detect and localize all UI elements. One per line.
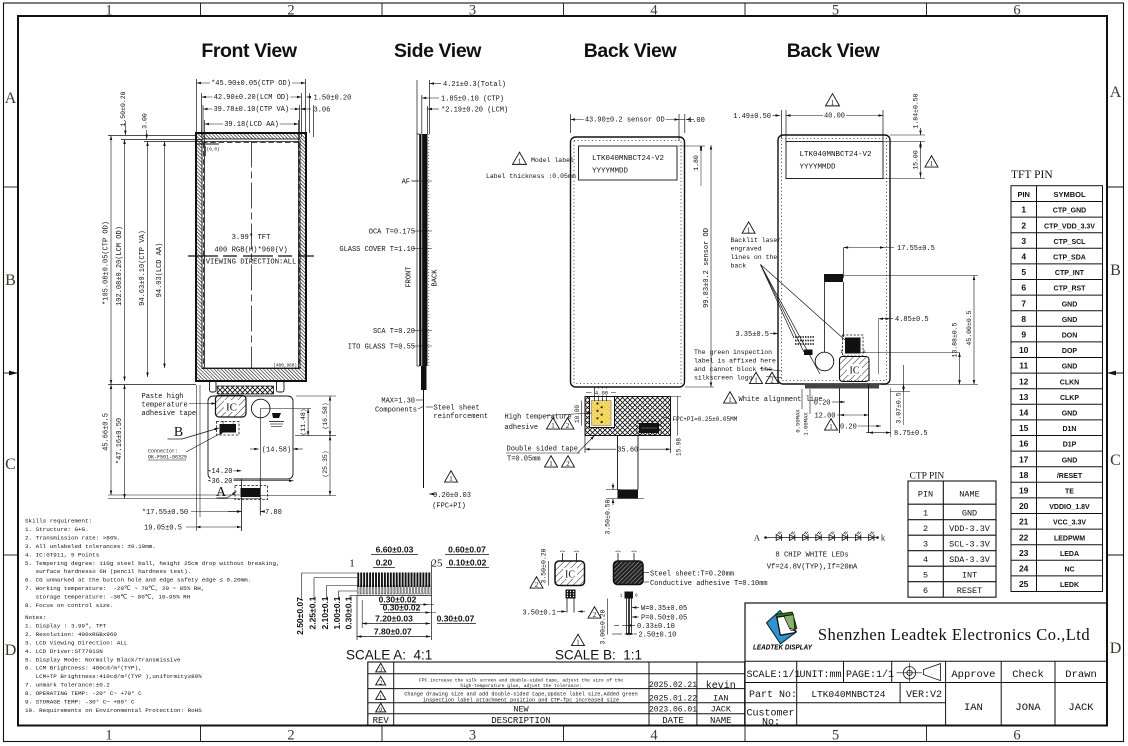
svg-text:*105.08±0.05(CTP OD): *105.08±0.05(CTP OD)	[103, 221, 111, 305]
svg-text:4. LCD Driver:ST7701SN: 4. LCD Driver:ST7701SN	[25, 648, 103, 655]
svg-text:15.00: 15.00	[913, 150, 920, 170]
svg-text:Label thickness :0.05mm: Label thickness :0.05mm	[486, 173, 576, 180]
svg-text:5: 5	[832, 728, 839, 744]
svg-text:JONA: JONA	[1015, 702, 1041, 714]
svg-text:GND: GND	[1062, 411, 1078, 418]
svg-text:DOP: DOP	[1062, 348, 1078, 355]
svg-text:Steel sheet:T=0.20mm: Steel sheet:T=0.20mm	[650, 571, 734, 579]
svg-text:1.00±0.1: 1.00±0.1	[332, 596, 342, 629]
svg-text:7: 7	[1021, 298, 1026, 308]
svg-text:7.20±0.03: 7.20±0.03	[375, 614, 413, 624]
svg-text:3.00: 3.00	[142, 113, 149, 129]
svg-text:Back View: Back View	[787, 40, 881, 62]
svg-text:D: D	[1110, 640, 1122, 657]
svg-text:1: 1	[840, 349, 843, 355]
svg-text:2: 2	[566, 460, 570, 468]
svg-text:1.00MAX: 1.00MAX	[803, 412, 810, 436]
svg-text:IAN: IAN	[964, 702, 983, 714]
svg-text:(25.35): (25.35)	[322, 450, 329, 477]
svg-text:GND: GND	[1062, 364, 1078, 371]
svg-text:1.85±0.10 (CTP): 1.85±0.10 (CTP)	[441, 96, 504, 104]
svg-text:DATE: DATE	[662, 716, 684, 726]
svg-text:0: 0	[379, 707, 382, 713]
svg-text:18: 18	[1019, 470, 1029, 480]
svg-text:engraved: engraved	[731, 246, 762, 253]
svg-text:2: 2	[593, 611, 597, 619]
svg-text:23: 23	[1019, 548, 1029, 558]
svg-text:PIN: PIN	[918, 490, 933, 500]
svg-text:GND: GND	[1062, 301, 1078, 308]
svg-text:SCALE:1/1: SCALE:1/1	[747, 669, 801, 681]
svg-text:CTP_SCL: CTP_SCL	[1054, 239, 1087, 246]
svg-text:B: B	[1110, 262, 1121, 279]
svg-text:5: 5	[832, 3, 839, 19]
svg-text:ITO GLASS T=0.55: ITO GLASS T=0.55	[348, 344, 415, 352]
svg-text:Back View: Back View	[584, 40, 678, 62]
svg-text:45.00±0.5: 45.00±0.5	[966, 310, 973, 345]
svg-text:(16.58): (16.58)	[322, 402, 329, 429]
svg-text:39.78±0.10(CTP VA): 39.78±0.10(CTP VA)	[213, 106, 289, 114]
svg-text:3.35±0.5: 3.35±0.5	[735, 331, 769, 339]
svg-text:3.06: 3.06	[314, 107, 331, 115]
svg-text:A: A	[754, 533, 761, 543]
svg-text:LEDK: LEDK	[1060, 582, 1079, 589]
svg-text:1. Display : 3.99", TFT: 1. Display : 3.99", TFT	[25, 622, 107, 629]
svg-text:8. Focus on control size.: 8. Focus on control size.	[25, 602, 113, 609]
svg-text:Paste high: Paste high	[142, 393, 184, 401]
svg-text:OCA T=0.175: OCA T=0.175	[369, 229, 415, 237]
svg-text:GND: GND	[962, 509, 977, 519]
svg-text:surface hardness≥ 6H (pencil h: surface hardness≥ 6H (pencil hardness te…	[25, 568, 191, 575]
svg-text:0.30±0.02: 0.30±0.02	[383, 603, 421, 613]
svg-text:12: 12	[1019, 376, 1029, 386]
svg-text:8: 8	[1021, 314, 1026, 324]
svg-text:B: B	[5, 272, 16, 289]
svg-text:1: 1	[449, 475, 453, 483]
svg-text:14.20: 14.20	[211, 468, 232, 476]
svg-text:4. IC:GT911, 5 Points: 4. IC:GT911, 5 Points	[25, 551, 100, 558]
svg-text:4.21±0.3(Total): 4.21±0.3(Total)	[443, 81, 506, 89]
svg-text:LEADTEK DISPLAY: LEADTEK DISPLAY	[753, 645, 813, 652]
svg-text:3: 3	[379, 667, 382, 673]
svg-text:LTK040MNBCT24-V2: LTK040MNBCT24-V2	[592, 155, 664, 163]
svg-text:Shenzhen Leadtek Electronics C: Shenzhen Leadtek Electronics Co.,Ltd	[818, 625, 1091, 644]
svg-text:(14.58): (14.58)	[262, 447, 291, 455]
svg-text:1: 1	[1021, 205, 1026, 215]
svg-text:1.50±0.20: 1.50±0.20	[314, 95, 352, 103]
svg-text:REV: REV	[373, 716, 390, 726]
svg-text:2: 2	[287, 3, 294, 19]
svg-text:2. Resolution: 400xRGBx960: 2. Resolution: 400xRGBx960	[25, 631, 117, 638]
svg-text:2.10±0.1: 2.10±0.1	[320, 596, 330, 629]
svg-text:B: B	[174, 425, 183, 440]
svg-text:and cannot block the: and cannot block the	[694, 366, 772, 373]
svg-text:8. OPERATING TEMP: -20° C~ +70: 8. OPERATING TEMP: -20° C~ +70° C	[25, 690, 142, 697]
svg-text:AF: AF	[402, 179, 410, 187]
svg-text:3.50±0.20: 3.50±0.20	[541, 548, 548, 583]
svg-text:LCM+TP Brightness:410cd/m²(TYP: LCM+TP Brightness:410cd/m²(TYP ),uniform…	[25, 673, 202, 680]
svg-text:0.20: 0.20	[814, 400, 831, 408]
svg-text:3.07±0.5: 3.07±0.5	[896, 392, 903, 423]
svg-text:3: 3	[469, 728, 476, 744]
svg-text:0.20: 0.20	[376, 558, 393, 568]
svg-text:3. LCD Viewing Direction: ALL: 3. LCD Viewing Direction: ALL	[25, 639, 128, 646]
svg-text:Front View: Front View	[201, 40, 298, 62]
svg-text:GLASS COVER T=1.10: GLASS COVER T=1.10	[339, 246, 415, 254]
svg-text:(400,960): (400,960)	[273, 364, 297, 369]
svg-text:3.00±0.20: 3.00±0.20	[600, 609, 607, 644]
svg-text:6: 6	[1013, 3, 1020, 19]
svg-text:1.84±0.50: 1.84±0.50	[913, 93, 920, 128]
svg-text:FPC increase the silk screen a: FPC increase the silk screen and double-…	[419, 678, 623, 684]
svg-text:(0,0): (0,0)	[207, 148, 220, 153]
svg-text:high-temperature glue, adjust: high-temperature glue, adjust the tolera…	[460, 683, 581, 689]
svg-text:inspection label attachment po: inspection label attachment position and…	[423, 698, 619, 704]
svg-text:D1P: D1P	[1063, 442, 1077, 449]
svg-text:Skills requirement:: Skills requirement:	[25, 518, 92, 525]
svg-text:1: 1	[620, 593, 623, 599]
svg-text:1.00: 1.00	[688, 117, 705, 125]
svg-text:lines on the: lines on the	[731, 254, 778, 261]
svg-text:YYYYMMDD: YYYYMMDD	[800, 164, 837, 172]
svg-text:FPC+PI=0.25±0.05MM: FPC+PI=0.25±0.05MM	[673, 416, 738, 423]
svg-text:2025.02.21: 2025.02.21	[649, 681, 697, 690]
svg-text:6: 6	[863, 349, 866, 355]
svg-text:4.85±0.5: 4.85±0.5	[895, 316, 929, 324]
svg-text:6: 6	[923, 586, 928, 596]
svg-text:1: 1	[930, 160, 934, 168]
svg-text:19: 19	[1019, 486, 1029, 496]
svg-text:15.98: 15.98	[676, 438, 683, 456]
svg-text:Vf=24.8V(TYP),If=20mA: Vf=24.8V(TYP),If=20mA	[767, 564, 858, 572]
svg-text:16: 16	[1019, 439, 1029, 449]
svg-text:Side View: Side View	[394, 40, 482, 62]
svg-text:10: 10	[1019, 345, 1029, 355]
svg-text:17.55±0.5: 17.55±0.5	[897, 245, 935, 253]
svg-text:MAX=1.30: MAX=1.30	[381, 398, 415, 406]
svg-text:35.60: 35.60	[617, 446, 638, 454]
svg-text:12.00: 12.00	[814, 413, 835, 421]
svg-text:1: 1	[831, 99, 835, 107]
svg-text:1: 1	[518, 158, 522, 166]
svg-text:94.63±0.10(CTP VA): 94.63±0.10(CTP VA)	[139, 230, 147, 306]
svg-text:0.60±0.07: 0.60±0.07	[448, 545, 486, 555]
svg-text:102.08±0.20(LCM OD): 102.08±0.20(LCM OD)	[116, 226, 124, 306]
svg-text:6: 6	[1013, 728, 1020, 744]
svg-text:2: 2	[535, 581, 539, 589]
svg-text:NAME: NAME	[710, 716, 732, 726]
svg-text:1: 1	[754, 377, 758, 385]
svg-text:IC: IC	[850, 366, 860, 377]
svg-text:*2.19±0.20 (LCM): *2.19±0.20 (LCM)	[441, 107, 508, 115]
svg-text:6. CG unmarked at the button h: 6. CG unmarked at the button hole and ed…	[25, 577, 251, 584]
svg-text:label is affixed here: label is affixed here	[694, 358, 776, 365]
svg-text:CTP_RST: CTP_RST	[1054, 286, 1087, 293]
svg-text:Steel sheet: Steel sheet	[434, 405, 480, 413]
svg-text:2025.01.22: 2025.01.22	[649, 695, 697, 704]
svg-text:25: 25	[432, 558, 444, 570]
svg-text:PIN: PIN	[1017, 190, 1030, 199]
svg-text:20: 20	[1019, 501, 1029, 511]
svg-text:SYMBOL: SYMBOL	[1053, 190, 1086, 199]
svg-text:0.33±0.10: 0.33±0.10	[637, 623, 675, 631]
svg-text:3: 3	[469, 3, 476, 19]
svg-text:Backlit laser: Backlit laser	[731, 237, 782, 244]
svg-text:1: 1	[551, 422, 555, 430]
svg-text:VER:V2: VER:V2	[906, 690, 942, 701]
svg-text:TE: TE	[1065, 489, 1074, 496]
svg-text:6: 6	[1021, 283, 1026, 293]
svg-text:0.10±0.02: 0.10±0.02	[449, 558, 487, 568]
svg-text:0.30±0.1: 0.30±0.1	[344, 596, 354, 629]
svg-text:94.03(LCD AA): 94.03(LCD AA)	[156, 243, 164, 298]
svg-text:Notes:: Notes:	[25, 614, 46, 621]
svg-text:6.60±0.03: 6.60±0.03	[376, 545, 414, 555]
svg-text:8: 8	[635, 593, 638, 599]
svg-text:VIEWING DIRECTION:ALL: VIEWING DIRECTION:ALL	[206, 259, 297, 267]
svg-text:(11.48): (11.48)	[300, 408, 307, 435]
svg-text:2.50±0.10: 2.50±0.10	[639, 632, 677, 640]
svg-text:INT: INT	[962, 571, 977, 581]
svg-text:13: 13	[1019, 392, 1029, 402]
svg-text:D1N: D1N	[1062, 426, 1076, 433]
svg-text:45.66±0.5: 45.66±0.5	[103, 413, 111, 451]
svg-text:CLKP: CLKP	[1060, 395, 1079, 402]
svg-text:Part No:: Part No:	[749, 690, 797, 701]
svg-text:2.50±0.07: 2.50±0.07	[295, 597, 305, 635]
svg-text:GND: GND	[1062, 317, 1078, 324]
svg-text:IC: IC	[565, 570, 575, 581]
svg-text:LEDA: LEDA	[1060, 551, 1079, 558]
svg-text:CTP_VDD_3.3V: CTP_VDD_3.3V	[1044, 223, 1095, 230]
svg-text:7. unmark Tolerance:±0.2: 7. unmark Tolerance:±0.2	[25, 682, 110, 689]
svg-text:T=0.05mm: T=0.05mm	[507, 456, 541, 464]
svg-text:8 CHIP WHITE LEDs: 8 CHIP WHITE LEDs	[775, 552, 848, 560]
svg-text:temperature: temperature	[142, 402, 188, 410]
svg-text:NC: NC	[1064, 567, 1074, 574]
svg-text:reinforcement: reinforcement	[434, 413, 489, 421]
svg-text:D: D	[5, 642, 17, 659]
svg-text:0.20: 0.20	[840, 424, 857, 432]
svg-text:19.05±0.5: 19.05±0.5	[144, 525, 182, 533]
svg-text:99.83±0.2 sensor OD: 99.83±0.2 sensor OD	[703, 228, 711, 308]
svg-text:A: A	[5, 90, 17, 107]
svg-text:TFT PIN: TFT PIN	[1011, 169, 1053, 181]
svg-text:4: 4	[650, 728, 658, 744]
svg-text:storage temperature: -30℃ ~ 80: storage temperature: -30℃ ~ 80℃, 10-95% …	[25, 594, 191, 601]
svg-text:C: C	[5, 456, 16, 473]
svg-text:FRONT: FRONT	[406, 266, 414, 287]
svg-text:5: 5	[1021, 267, 1026, 277]
svg-text:5. Display Mode: Normally Blac: 5. Display Mode: Normally Black/Transmis…	[25, 656, 181, 663]
svg-text:3.99" TFT: 3.99" TFT	[232, 234, 272, 242]
svg-text:14: 14	[1019, 408, 1029, 418]
svg-text:CTP PIN: CTP PIN	[910, 472, 945, 482]
svg-text:10. Requirements on Environmen: 10. Requirements on Environmental Protec…	[25, 707, 202, 714]
svg-text:40.00: 40.00	[824, 113, 845, 121]
svg-text:400 RGB(H)*960(V): 400 RGB(H)*960(V)	[214, 247, 287, 255]
svg-text:4: 4	[650, 3, 658, 19]
svg-text:PAGE:1/1: PAGE:1/1	[846, 669, 894, 681]
svg-text:C: C	[1110, 452, 1121, 469]
svg-text:Drawn: Drawn	[1065, 669, 1097, 681]
svg-text:9: 9	[1021, 330, 1026, 340]
svg-text:24: 24	[1019, 564, 1029, 574]
svg-text:VDDIO_1.8V: VDDIO_1.8V	[1049, 504, 1090, 511]
svg-text:GND: GND	[1062, 457, 1078, 464]
svg-text:2: 2	[1021, 220, 1026, 230]
svg-text:CTP_SDA: CTP_SDA	[1053, 255, 1086, 262]
svg-text:No:: No:	[762, 718, 780, 729]
svg-text:3.50±0.1: 3.50±0.1	[522, 610, 556, 618]
svg-text:2: 2	[566, 422, 570, 430]
svg-text:Double sided tape: Double sided tape	[507, 446, 578, 454]
svg-text:W=0.35±0.05: W=0.35±0.05	[641, 605, 687, 613]
svg-text:LTK040MNBCT24-V2: LTK040MNBCT24-V2	[800, 151, 872, 159]
svg-text:11: 11	[1019, 361, 1028, 371]
svg-text:RESET: RESET	[957, 586, 983, 596]
svg-text:JACK: JACK	[711, 705, 732, 715]
svg-text:UNIT:mm: UNIT:mm	[800, 670, 842, 681]
svg-text:21: 21	[1019, 517, 1029, 527]
svg-text:*17.55±0.50: *17.55±0.50	[142, 509, 188, 517]
svg-text:NEW: NEW	[513, 705, 529, 715]
svg-text:OK-F501-06325: OK-F501-06325	[148, 455, 187, 461]
svg-text:SCL-3.3V: SCL-3.3V	[949, 540, 991, 550]
svg-text:3. All unlabeled tolerances: ±: 3. All unlabeled tolerances: ±0.10mm.	[25, 543, 156, 550]
svg-text:adhesive: adhesive	[505, 424, 539, 432]
svg-text:2: 2	[287, 728, 294, 744]
svg-text:1: 1	[349, 558, 355, 570]
svg-text:1.49±0.50: 1.49±0.50	[733, 113, 771, 121]
svg-text:1: 1	[728, 396, 732, 404]
svg-text:1: 1	[576, 639, 580, 647]
svg-text:3.50±0.50: 3.50±0.50	[605, 499, 612, 534]
svg-text:adhesive tape: adhesive tape	[142, 410, 197, 418]
svg-text:*45.90±0.05(CTP OD): *45.90±0.05(CTP OD)	[211, 80, 291, 88]
svg-text:SCA T=0.20: SCA T=0.20	[373, 328, 415, 336]
svg-text:LEDPWM: LEDPWM	[1054, 535, 1085, 542]
svg-text:4: 4	[923, 555, 928, 565]
svg-text:LTK040MNBCT24: LTK040MNBCT24	[811, 689, 885, 700]
svg-text:8.75±0.5: 8.75±0.5	[894, 430, 928, 438]
svg-text:0.20±0.03: 0.20±0.03	[433, 492, 471, 500]
svg-text:silkscreen logo: silkscreen logo	[694, 375, 753, 382]
svg-text:Conductive adhesive T=0.10mm: Conductive adhesive T=0.10mm	[650, 580, 768, 588]
svg-text:6. LCM Brightness: 480cd/m²(TY: 6. LCM Brightness: 480cd/m²(TYP),	[25, 665, 142, 672]
svg-text:43.90±0.2 sensor OD: 43.90±0.2 sensor OD	[585, 117, 665, 125]
svg-text:1: 1	[829, 423, 833, 431]
svg-text:IAN: IAN	[713, 694, 728, 704]
svg-text:A: A	[1110, 84, 1122, 101]
svg-text:39.18(LCD AA): 39.18(LCD AA)	[224, 121, 279, 129]
svg-text:BACK: BACK	[432, 269, 440, 287]
svg-text:0.30±0.07: 0.30±0.07	[437, 614, 475, 624]
svg-text:1: 1	[747, 226, 751, 234]
svg-text:JACK: JACK	[1068, 702, 1094, 714]
svg-text:(FPC+PI): (FPC+PI)	[432, 503, 466, 511]
svg-text:1.80: 1.80	[693, 155, 700, 171]
svg-text:7.80±0.07: 7.80±0.07	[374, 627, 412, 637]
svg-text:2: 2	[770, 377, 774, 385]
svg-text:Check: Check	[1012, 669, 1044, 681]
svg-text:Approve: Approve	[951, 669, 995, 681]
svg-text:22: 22	[1019, 532, 1029, 542]
svg-text:1: 1	[105, 728, 112, 744]
svg-text:7.80: 7.80	[265, 509, 282, 517]
svg-text:NAME: NAME	[959, 490, 979, 500]
svg-text:DON: DON	[1062, 333, 1078, 340]
svg-text:13.88±0.5: 13.88±0.5	[952, 322, 959, 357]
svg-text:1.50±0.20: 1.50±0.20	[120, 91, 127, 126]
svg-text:/RESET: /RESET	[1057, 473, 1083, 480]
svg-text:back: back	[731, 263, 747, 270]
svg-text:3: 3	[923, 540, 928, 550]
svg-text:SDA-3.3V: SDA-3.3V	[949, 555, 991, 565]
svg-text:SCALE B: 1:1: SCALE B: 1:1	[555, 648, 642, 663]
svg-text:3: 3	[1021, 236, 1026, 246]
svg-text:25: 25	[1019, 579, 1029, 589]
svg-text:1: 1	[379, 695, 382, 701]
svg-text:2. Transmission rate: >86%.: 2. Transmission rate: >86%.	[25, 534, 120, 541]
svg-text:5: 5	[923, 571, 928, 581]
svg-text:1: 1	[923, 509, 928, 519]
svg-text:4: 4	[1021, 252, 1026, 262]
svg-text:IC: IC	[226, 402, 237, 414]
svg-text:5. Tempering degree: 110g stee: 5. Tempering degree: 110g steel ball, he…	[25, 560, 280, 567]
svg-text:Components: Components	[375, 407, 417, 415]
svg-text:1. Structure: G+G.: 1. Structure: G+G.	[25, 526, 89, 533]
svg-text:Model label: Model label	[531, 157, 574, 164]
svg-text:SCALE A: 4:1: SCALE A: 4:1	[346, 648, 432, 663]
svg-text:VDD-3.3V: VDD-3.3V	[949, 524, 991, 534]
svg-text:17: 17	[1019, 454, 1029, 464]
svg-text:9. STORAGE TEMP: -30° C~ +80°: 9. STORAGE TEMP: -30° C~ +80° C	[25, 699, 135, 706]
svg-text:1: 1	[105, 3, 112, 19]
svg-text:0.50MAX: 0.50MAX	[795, 409, 802, 433]
svg-text:7. Working temperature: -20℃: 7. Working temperature: -20℃ ~ 70℃, 20 ~…	[25, 585, 204, 592]
svg-text:2.25±0.1: 2.25±0.1	[308, 596, 318, 629]
svg-text:CTP_GND: CTP_GND	[1053, 208, 1086, 215]
svg-text:CTP_INT: CTP_INT	[1055, 270, 1085, 277]
svg-text:1: 1	[549, 460, 553, 468]
svg-text:P=0.50±0.05: P=0.50±0.05	[641, 615, 687, 623]
svg-text:DESCRIPTION: DESCRIPTION	[491, 716, 550, 726]
svg-text:42.90±0.20(LCM OD): 42.90±0.20(LCM OD)	[214, 94, 290, 102]
svg-text:YYYYMMDD: YYYYMMDD	[592, 168, 629, 176]
svg-text:kevin: kevin	[706, 680, 736, 692]
svg-text:The green inspection: The green inspection	[694, 349, 772, 356]
svg-text:CLKN: CLKN	[1060, 379, 1079, 386]
svg-text:2: 2	[379, 680, 382, 686]
svg-text:2023.06.01: 2023.06.01	[649, 706, 697, 715]
svg-text:15: 15	[1019, 423, 1029, 433]
svg-text:VCC_3.3V: VCC_3.3V	[1053, 520, 1086, 527]
svg-text:4.00: 4.00	[595, 390, 608, 397]
svg-text:2: 2	[923, 524, 928, 534]
svg-text:*47.16±0.50: *47.16±0.50	[116, 418, 124, 464]
